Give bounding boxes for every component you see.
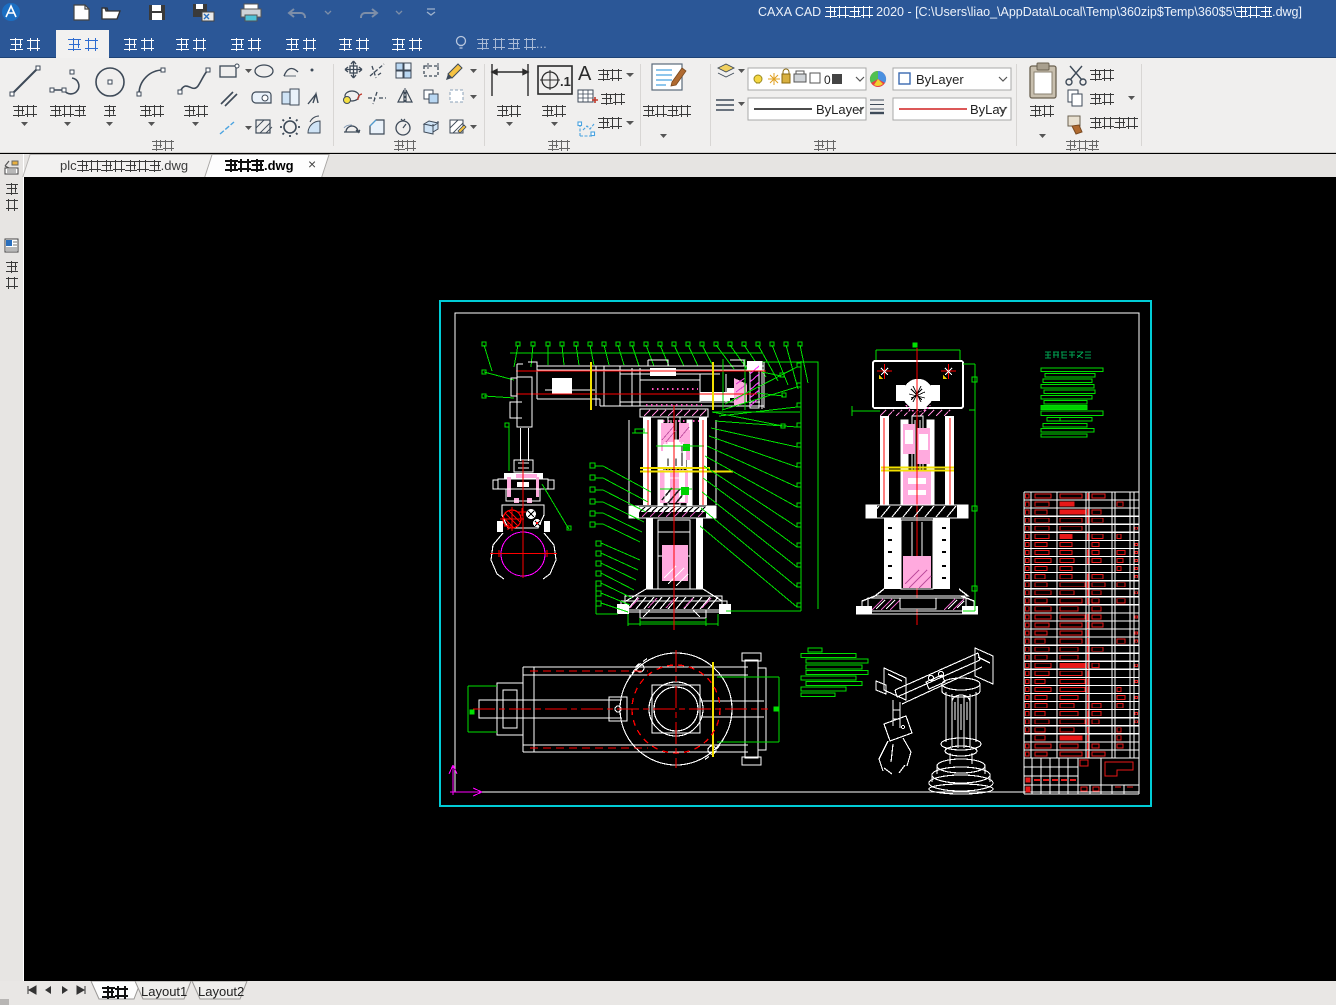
svg-text:0: 0 [824, 73, 831, 87]
svg-text:ByLayer: ByLayer [816, 102, 864, 117]
svg-text:ByLayer: ByLayer [916, 72, 964, 87]
svg-text:.1: .1 [560, 74, 571, 89]
svg-text:A: A [578, 63, 592, 85]
